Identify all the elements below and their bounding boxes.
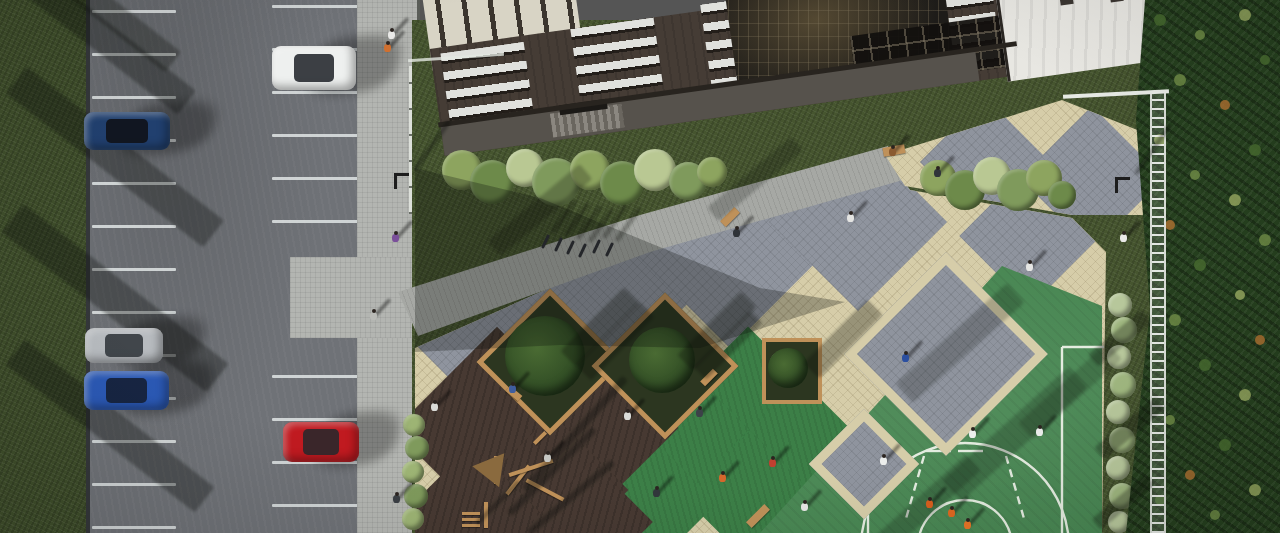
person: [653, 486, 661, 496]
car-glass: [106, 119, 147, 143]
person-body: [370, 312, 377, 320]
tree-speckle: [1229, 194, 1241, 206]
car-glass: [294, 54, 334, 82]
person-head: [1122, 231, 1126, 235]
silver-car: [85, 328, 163, 363]
person-body: [880, 457, 887, 465]
person-body: [509, 385, 516, 393]
car-glass: [105, 334, 142, 356]
person: [624, 409, 632, 419]
stall-line: [92, 225, 176, 228]
person-head: [655, 486, 659, 490]
person-head: [849, 211, 853, 215]
red-car: [283, 422, 359, 462]
person-head: [882, 454, 886, 458]
person-head: [626, 409, 630, 413]
person-head: [1028, 260, 1032, 264]
dark-blue-car: [84, 112, 170, 150]
person-body: [769, 459, 776, 467]
lamp-arm: [1117, 177, 1130, 180]
tree-speckle: [1169, 314, 1181, 326]
person: [926, 497, 934, 507]
lamp-arm: [396, 173, 409, 176]
person-head: [771, 456, 775, 460]
hedge-bush: [402, 461, 424, 483]
wood-element: [462, 512, 480, 515]
person-head: [394, 231, 398, 235]
person: [384, 41, 392, 51]
person-body: [1026, 263, 1033, 271]
tree-speckle: [1249, 144, 1261, 156]
roof-vent: [1110, 0, 1124, 3]
person-head: [966, 518, 970, 522]
car-glass: [106, 378, 147, 403]
hedge-bush: [1106, 456, 1130, 480]
person-head: [950, 506, 954, 510]
person-head: [390, 28, 394, 32]
tree-speckle: [1219, 439, 1231, 451]
person-body: [801, 503, 808, 511]
tree-speckle: [1154, 14, 1166, 26]
person-body: [653, 489, 660, 497]
roof-vent: [1060, 0, 1074, 6]
person-body: [719, 474, 726, 482]
person-head: [971, 427, 975, 431]
stall-line: [272, 134, 358, 137]
person: [719, 471, 727, 481]
person-body: [902, 354, 909, 362]
hedge-bush: [402, 508, 424, 530]
person-body: [431, 403, 438, 411]
person-body: [1120, 234, 1127, 242]
person-head: [395, 492, 399, 496]
person-body: [624, 412, 631, 420]
tree-speckle: [1210, 510, 1220, 520]
person-body: [969, 430, 976, 438]
tree-speckle: [1220, 100, 1230, 110]
hedge-bush: [1110, 372, 1136, 398]
hedge-bush: [403, 414, 425, 436]
person-body: [926, 500, 933, 508]
person-head: [546, 451, 550, 455]
stall-line: [272, 220, 358, 223]
person: [880, 454, 888, 464]
tree-speckle: [1194, 259, 1206, 271]
person-head: [928, 497, 932, 501]
tree-speckle: [1239, 389, 1251, 401]
person: [769, 456, 777, 466]
person-head: [433, 400, 437, 404]
person-head: [904, 351, 908, 355]
person-head: [511, 382, 515, 386]
tree-speckle: [1239, 9, 1251, 21]
person: [544, 451, 552, 461]
stall-line: [272, 177, 358, 180]
person-head: [372, 309, 376, 313]
person: [801, 500, 809, 510]
tree-speckle: [1185, 470, 1195, 480]
person: [696, 406, 704, 416]
person-head: [891, 145, 895, 149]
person: [934, 166, 942, 176]
tree-speckle: [1259, 234, 1271, 246]
person-body: [384, 44, 391, 52]
person: [1026, 260, 1034, 270]
person: [393, 492, 401, 502]
person: [392, 231, 400, 241]
white-fence-right: [1150, 92, 1166, 533]
tree-speckle: [1165, 415, 1175, 425]
tree-speckle: [1165, 220, 1175, 230]
stall-line: [92, 526, 176, 529]
tree-speckle: [1195, 30, 1205, 40]
hedge-bush: [1048, 181, 1076, 209]
person: [370, 309, 378, 319]
person: [509, 382, 517, 392]
blue-car: [84, 371, 169, 410]
person: [847, 211, 855, 221]
person-body: [392, 234, 399, 242]
courtyard-fence-left: [409, 66, 412, 214]
person: [964, 518, 972, 528]
stall-line: [272, 375, 358, 378]
person-body: [696, 409, 703, 417]
aerial-render: [0, 0, 1280, 533]
person-head: [936, 166, 940, 170]
tree-canopy: [768, 348, 808, 388]
person-head: [803, 500, 807, 504]
person-head: [1038, 425, 1042, 429]
person-head: [721, 471, 725, 475]
hedge-bush: [1108, 293, 1132, 317]
person: [889, 145, 897, 155]
person: [1036, 425, 1044, 435]
person-body: [544, 454, 551, 462]
stall-line: [272, 5, 358, 8]
person-body: [733, 229, 740, 237]
person-body: [1036, 428, 1043, 436]
person-body: [934, 169, 941, 177]
person-head: [735, 226, 739, 230]
hedge-bush: [697, 157, 727, 187]
stall-line: [272, 504, 358, 507]
white-car: [272, 46, 356, 90]
person: [1120, 231, 1128, 241]
person-body: [889, 148, 896, 156]
tree-speckle: [1235, 290, 1245, 300]
person-body: [393, 495, 400, 503]
tree-speckle: [1174, 74, 1186, 86]
tree-speckle: [1199, 359, 1211, 371]
person: [431, 400, 439, 410]
person: [902, 351, 910, 361]
hedge-bush: [405, 436, 429, 460]
person-body: [847, 214, 854, 222]
person: [733, 226, 741, 236]
person-head: [698, 406, 702, 410]
person-body: [964, 521, 971, 529]
tree-speckle: [1255, 335, 1265, 345]
person: [969, 427, 977, 437]
person-body: [948, 509, 955, 517]
person: [948, 506, 956, 516]
tree-speckle: [1190, 170, 1200, 180]
tree-speckle: [1260, 55, 1270, 65]
tree-speckle: [1249, 484, 1261, 496]
person-head: [386, 41, 390, 45]
car-glass: [303, 429, 339, 455]
